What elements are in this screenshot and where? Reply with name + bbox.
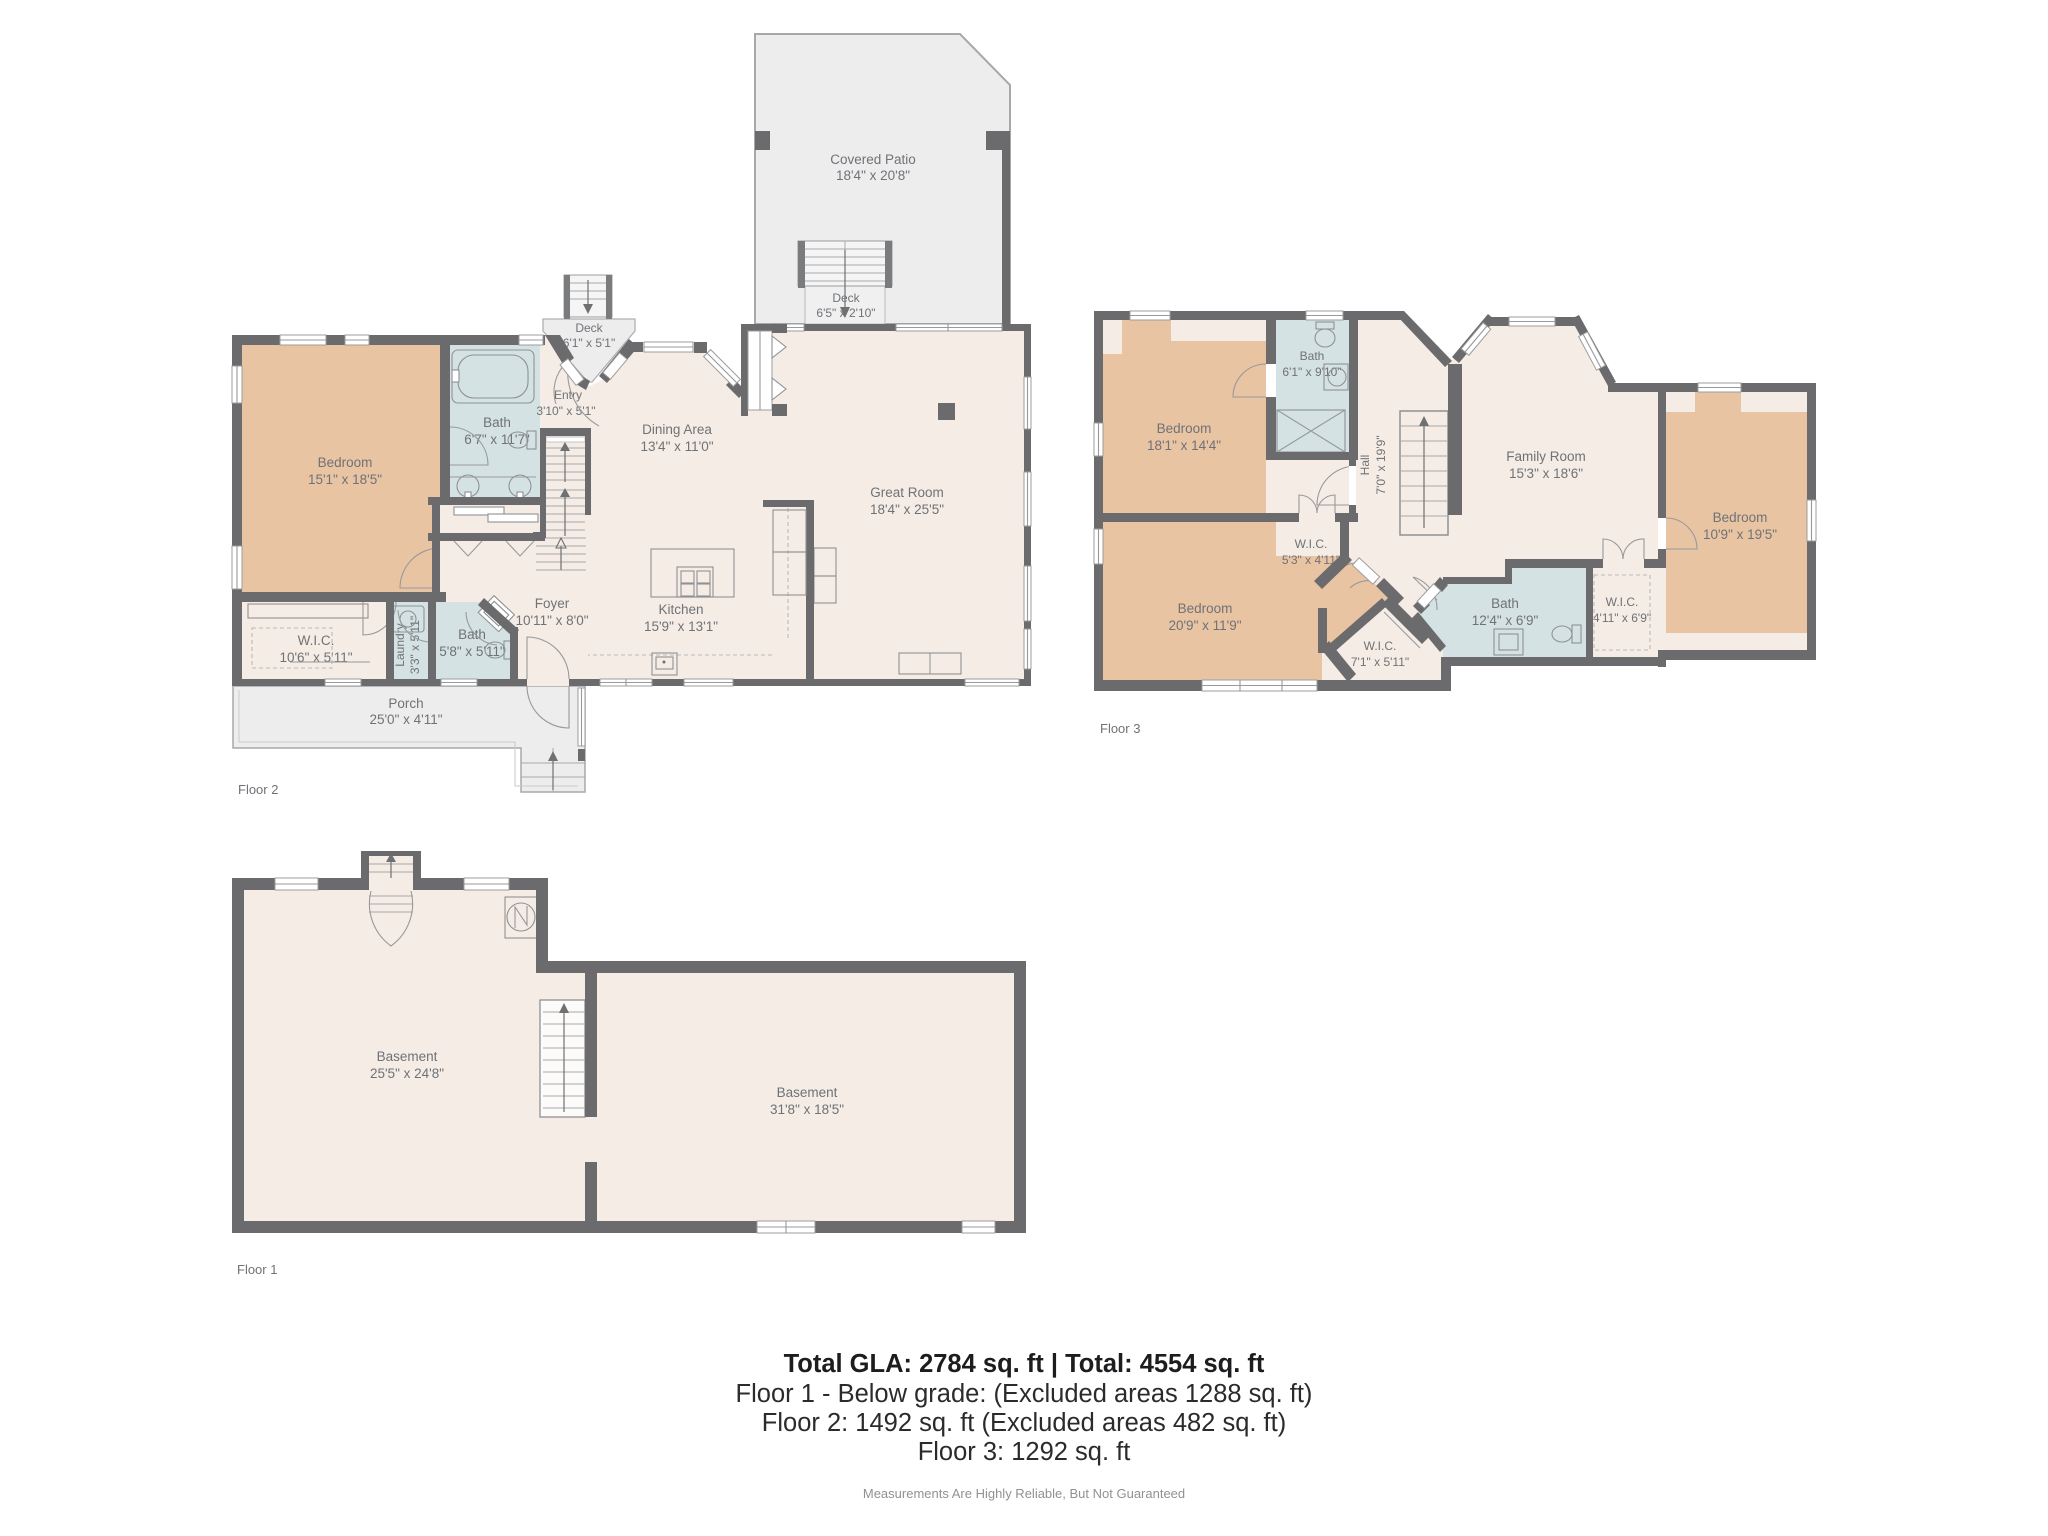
svg-text:15'9" x 13'1": 15'9" x 13'1"	[644, 619, 718, 634]
svg-text:10'6" x 5'11": 10'6" x 5'11"	[279, 650, 352, 665]
svg-text:18'1" x 14'4": 18'1" x 14'4"	[1147, 438, 1221, 453]
svg-text:Dining Area: Dining Area	[642, 422, 712, 437]
svg-text:18'4" x 20'8": 18'4" x 20'8"	[836, 168, 910, 183]
svg-text:W.I.C.: W.I.C.	[1364, 639, 1397, 653]
svg-text:4'11" x 6'9": 4'11" x 6'9"	[1593, 611, 1651, 625]
svg-text:25'0" x 4'11": 25'0" x 4'11"	[369, 712, 442, 727]
svg-text:Bedroom: Bedroom	[318, 455, 373, 470]
svg-text:Bath: Bath	[483, 415, 511, 430]
svg-text:7'1" x 5'11": 7'1" x 5'11"	[1351, 655, 1409, 669]
svg-text:10'11" x 8'0": 10'11" x 8'0"	[515, 613, 588, 628]
svg-text:Entry: Entry	[554, 388, 582, 402]
svg-text:15'3" x 18'6": 15'3" x 18'6"	[1509, 466, 1583, 481]
svg-text:Foyer: Foyer	[535, 596, 570, 611]
svg-text:W.I.C.: W.I.C.	[298, 633, 335, 648]
svg-text:Floor 3: 1292 sq. ft: Floor 3: 1292 sq. ft	[918, 1438, 1131, 1466]
svg-text:Deck: Deck	[832, 291, 860, 305]
svg-text:Bedroom: Bedroom	[1713, 510, 1768, 525]
svg-text:3'10" x 5'1": 3'10" x 5'1"	[536, 404, 595, 418]
svg-text:W.I.C.: W.I.C.	[1295, 537, 1328, 551]
svg-text:Measurements Are Highly Reliab: Measurements Are Highly Reliable, But No…	[863, 1486, 1185, 1501]
svg-text:18'4" x 25'5": 18'4" x 25'5"	[870, 502, 944, 517]
svg-text:31'8" x 18'5": 31'8" x 18'5"	[770, 1102, 844, 1117]
svg-text:Basement: Basement	[377, 1049, 438, 1064]
svg-text:Great Room: Great Room	[870, 485, 944, 500]
svg-text:6'5" x 2'10": 6'5" x 2'10"	[816, 306, 875, 320]
svg-text:Total GLA: 2784 sq. ft | Total: Total GLA: 2784 sq. ft | Total: 4554 sq.…	[784, 1350, 1265, 1378]
svg-text:Deck: Deck	[575, 321, 603, 335]
svg-text:10'9" x 19'5": 10'9" x 19'5"	[1703, 527, 1777, 542]
svg-text:Floor 1 - Below grade: (Exclud: Floor 1 - Below grade: (Excluded areas 1…	[736, 1380, 1313, 1408]
svg-text:Covered Patio: Covered Patio	[830, 152, 916, 167]
svg-text:Family Room: Family Room	[1506, 449, 1586, 464]
svg-text:Bedroom: Bedroom	[1157, 421, 1212, 436]
svg-text:Floor 1: Floor 1	[237, 1262, 277, 1277]
svg-text:Bath: Bath	[1300, 349, 1325, 363]
svg-text:Floor 3: Floor 3	[1100, 721, 1140, 736]
svg-text:12'4" x 6'9": 12'4" x 6'9"	[1472, 613, 1539, 628]
svg-text:Floor 2: 1492 sq. ft (Excluded: Floor 2: 1492 sq. ft (Excluded areas 482…	[762, 1409, 1286, 1437]
svg-text:15'1" x 18'5": 15'1" x 18'5"	[308, 472, 382, 487]
svg-text:13'4" x 11'0": 13'4" x 11'0"	[640, 439, 713, 454]
svg-text:Bedroom: Bedroom	[1178, 601, 1233, 616]
svg-text:20'9" x 11'9": 20'9" x 11'9"	[1168, 618, 1241, 633]
svg-text:Floor 2: Floor 2	[238, 782, 278, 797]
svg-text:Bath: Bath	[1491, 596, 1519, 611]
svg-text:25'5" x 24'8": 25'5" x 24'8"	[370, 1066, 444, 1081]
svg-text:Porch: Porch	[388, 696, 423, 711]
svg-text:6'1" x 5'1": 6'1" x 5'1"	[563, 336, 615, 350]
svg-text:Basement: Basement	[777, 1085, 838, 1100]
svg-text:7'0" x 19'9": 7'0" x 19'9"	[1374, 435, 1388, 494]
svg-text:Kitchen: Kitchen	[658, 602, 703, 617]
svg-text:Hall: Hall	[1358, 455, 1372, 476]
svg-text:W.I.C.: W.I.C.	[1606, 595, 1639, 609]
